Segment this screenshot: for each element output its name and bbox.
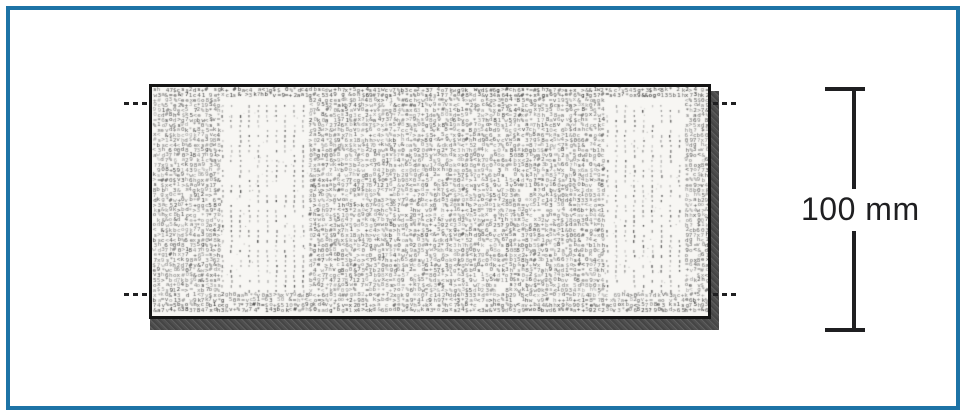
dashed-section-line-left-bottom xyxy=(124,293,147,296)
dashed-section-line-left-top xyxy=(124,102,147,105)
dimension-cap-top-icon xyxy=(825,87,865,91)
dimension-cap-bottom-icon xyxy=(825,328,865,332)
figure-canvas: 100 mm xyxy=(0,0,962,420)
dimension-indicator: 100 mm xyxy=(825,87,865,332)
dimension-label: 100 mm xyxy=(795,189,926,231)
specimen-photo xyxy=(149,84,711,319)
dashed-section-line-right-top xyxy=(713,102,736,105)
speckle-pattern-canvas xyxy=(152,87,708,316)
dashed-section-line-right-bottom xyxy=(713,293,736,296)
